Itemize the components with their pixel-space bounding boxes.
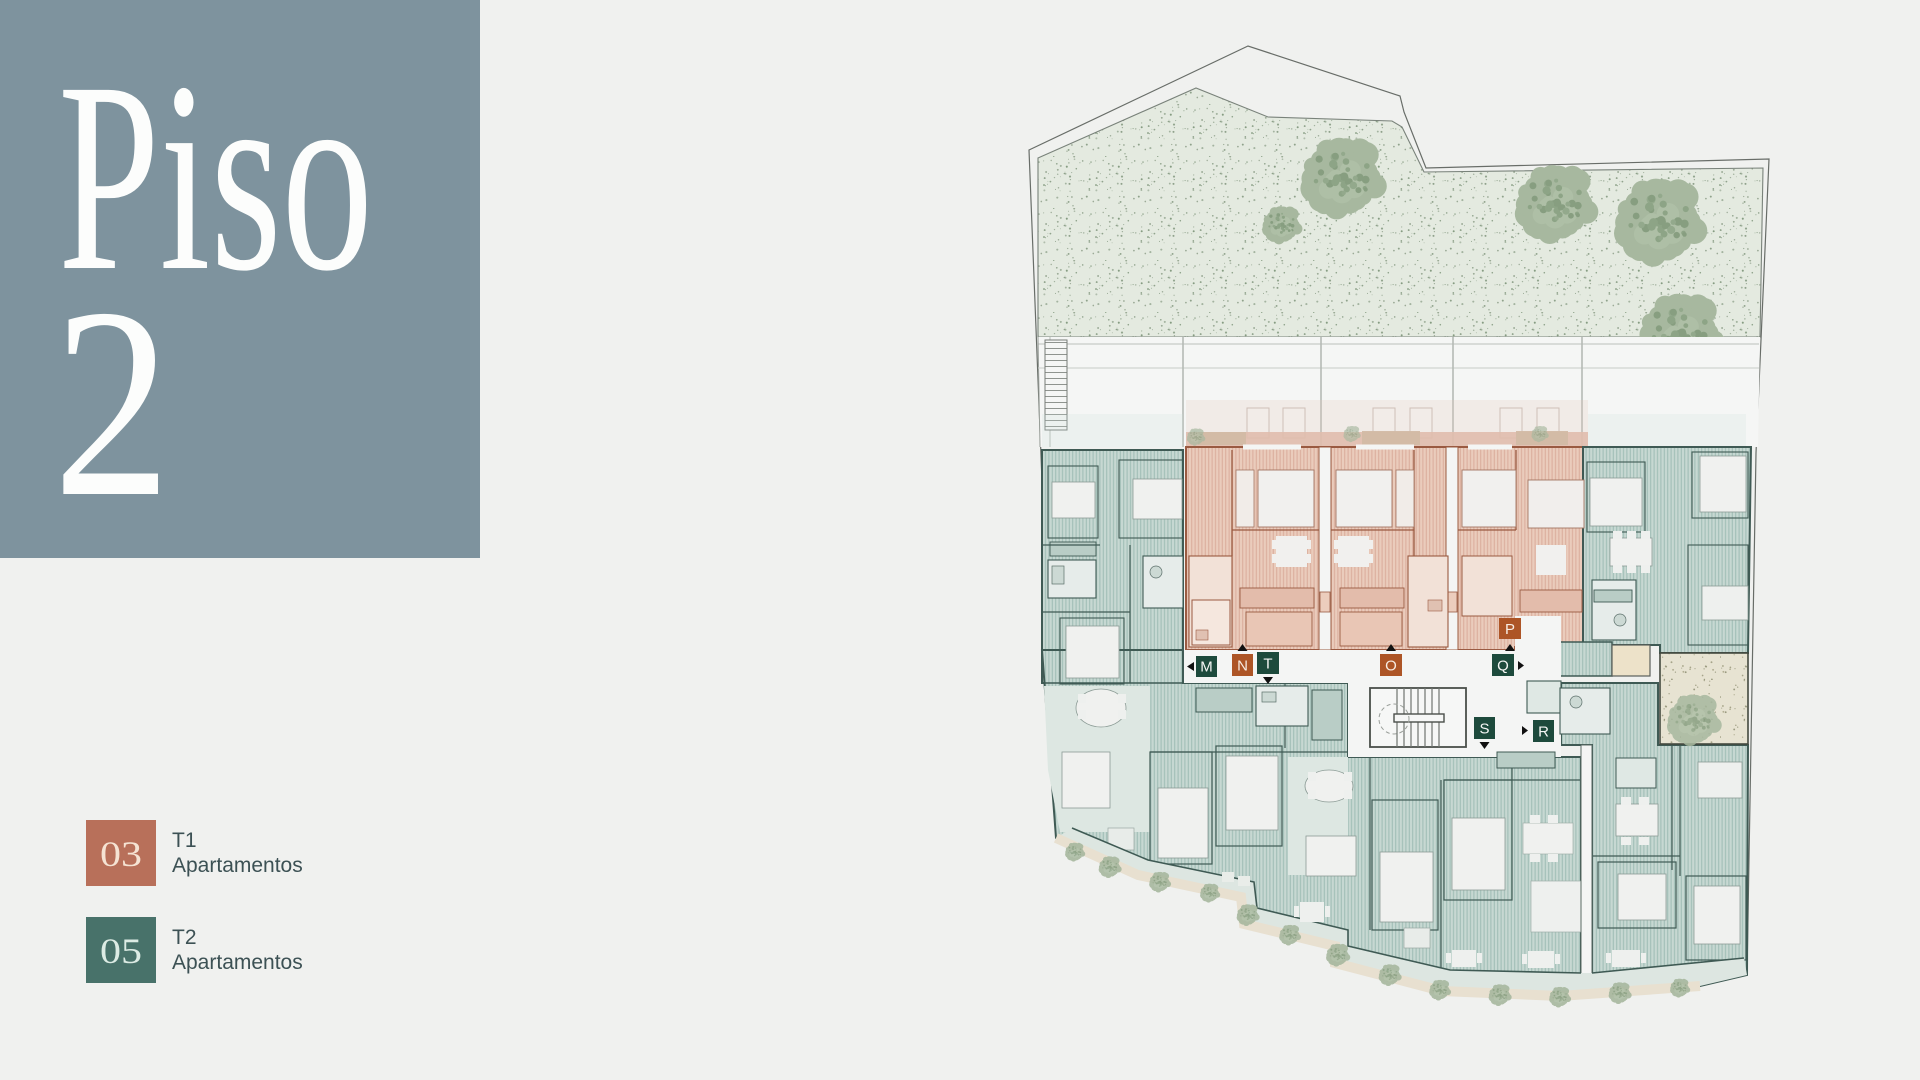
svg-text:T2: T2 [172, 926, 197, 949]
svg-text:N: N [1237, 658, 1248, 675]
svg-text:R: R [1538, 724, 1549, 741]
svg-text:S: S [1479, 721, 1489, 738]
svg-text:Apartamentos: Apartamentos [172, 951, 303, 974]
svg-text:Q: Q [1497, 658, 1509, 675]
svg-text:Apartamentos: Apartamentos [172, 854, 303, 877]
svg-text:P: P [1505, 621, 1515, 638]
svg-text:03: 03 [100, 834, 142, 874]
svg-text:T1: T1 [172, 829, 197, 852]
svg-text:O: O [1385, 658, 1397, 675]
svg-text:T: T [1263, 656, 1272, 673]
svg-text:2: 2 [53, 252, 171, 553]
svg-text:05: 05 [100, 931, 142, 971]
svg-text:M: M [1200, 659, 1213, 676]
